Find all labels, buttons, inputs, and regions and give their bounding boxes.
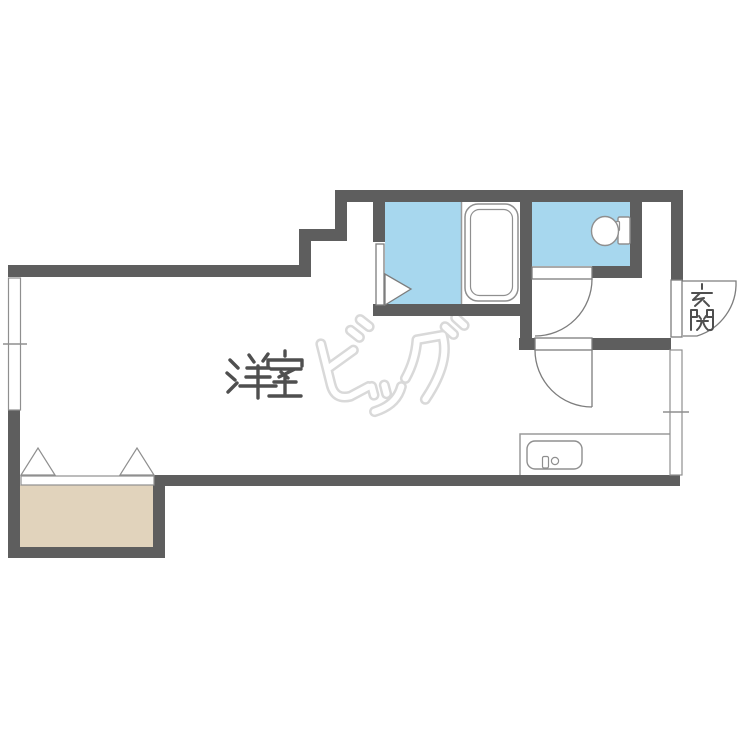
entrance-label: 玄関 bbox=[691, 284, 713, 330]
wall-left-lower bbox=[8, 410, 20, 558]
bathtub-icon bbox=[465, 204, 518, 301]
wall-bath-toilet-divider bbox=[520, 202, 532, 350]
main-door-threshold bbox=[535, 338, 592, 350]
entrance-door-threshold bbox=[671, 280, 682, 337]
wall-hall-bottom-left-stub bbox=[519, 338, 535, 350]
folding-door-triangle-1 bbox=[21, 448, 55, 475]
kanji-kan bbox=[691, 310, 713, 330]
toilet-door-panel bbox=[532, 267, 592, 279]
closet-floor bbox=[20, 485, 155, 547]
wall-toilet-bottom bbox=[592, 266, 642, 278]
closet-folding-doors bbox=[21, 448, 154, 485]
kanji-shitsu bbox=[268, 351, 302, 396]
kanji-gen bbox=[692, 284, 712, 306]
windows bbox=[3, 278, 689, 475]
wall-closet-bottom bbox=[8, 547, 165, 558]
wall-washroom-left bbox=[373, 202, 385, 242]
wall-top bbox=[337, 190, 683, 202]
wall-step-vertical2 bbox=[335, 190, 347, 241]
toilet-icon bbox=[592, 217, 631, 246]
wall-hall-bottom-right bbox=[592, 338, 671, 350]
closet-door-track bbox=[21, 476, 154, 485]
main-room-label: 洋室 bbox=[227, 351, 302, 398]
wall-right-upper bbox=[671, 190, 683, 281]
floorplan-canvas: 洋室 玄関 ビッグ ビッグ bbox=[0, 0, 750, 750]
floorplan-drawing: ビッグ bbox=[0, 0, 750, 750]
watermark-logo: ビッグ bbox=[317, 317, 475, 416]
wall-bath-bottom bbox=[373, 304, 532, 316]
main-door-swing bbox=[535, 350, 592, 407]
wall-room-bottom bbox=[153, 475, 680, 486]
washroom-door-panel bbox=[376, 244, 384, 305]
wall-left-horizontal bbox=[8, 265, 311, 277]
kitchen-sink-icon bbox=[527, 441, 582, 469]
folding-door-triangle-2 bbox=[120, 448, 154, 475]
wall-closet-right bbox=[153, 475, 165, 558]
toilet-door-swing bbox=[535, 279, 592, 336]
